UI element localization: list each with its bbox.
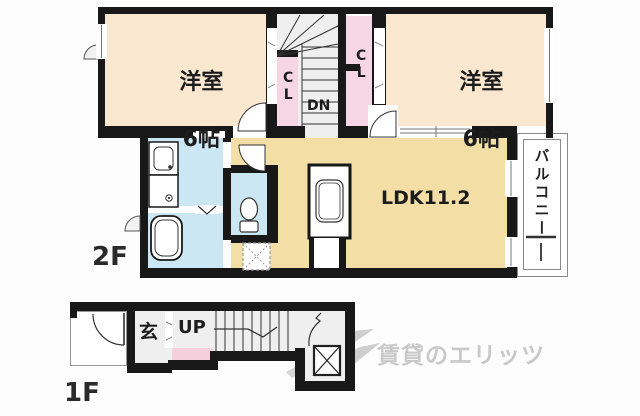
bedroom-right-size: 6帖 — [463, 127, 500, 152]
folding-door — [195, 205, 219, 214]
balcony-divider — [526, 237, 556, 261]
meter-box-icon — [314, 346, 340, 375]
bedroom-left-label: 洋室 6帖 — [105, 40, 267, 183]
entrance-door-arc — [93, 313, 124, 345]
floorplan-page: 洋室 6帖 洋室 6帖 LDK11.2 バルコニー CL CL DN 2F 玄 … — [0, 0, 640, 416]
watermark-text: 賃貸のエリッツ — [377, 342, 545, 372]
stairs-down-label: DN — [307, 97, 330, 115]
stairs-up-label: UP — [178, 316, 206, 339]
floor1-label: 1F — [64, 377, 100, 411]
bedroom-left-size: 6帖 — [183, 127, 220, 152]
kitchen-counter-icon — [309, 165, 350, 268]
entrance-label: 玄 — [139, 320, 158, 345]
bedroom-right-name: 洋室 — [459, 70, 503, 95]
ldk-label: LDK11.2 — [381, 186, 470, 211]
closet-left-label: CL — [279, 70, 297, 104]
landing-door-arc — [309, 313, 321, 346]
bedroom-right-label: 洋室 6帖 — [386, 40, 546, 183]
bedroom-left-name: 洋室 — [179, 70, 223, 95]
bathtub-icon — [151, 216, 182, 260]
stairs-1f-icon — [214, 311, 288, 351]
storage-hatch-icon — [243, 243, 270, 270]
toilet-icon — [240, 198, 258, 232]
balcony-label: バルコニー — [531, 148, 551, 238]
floor2-label: 2F — [92, 241, 128, 275]
closet-right-label: CL — [352, 48, 370, 82]
